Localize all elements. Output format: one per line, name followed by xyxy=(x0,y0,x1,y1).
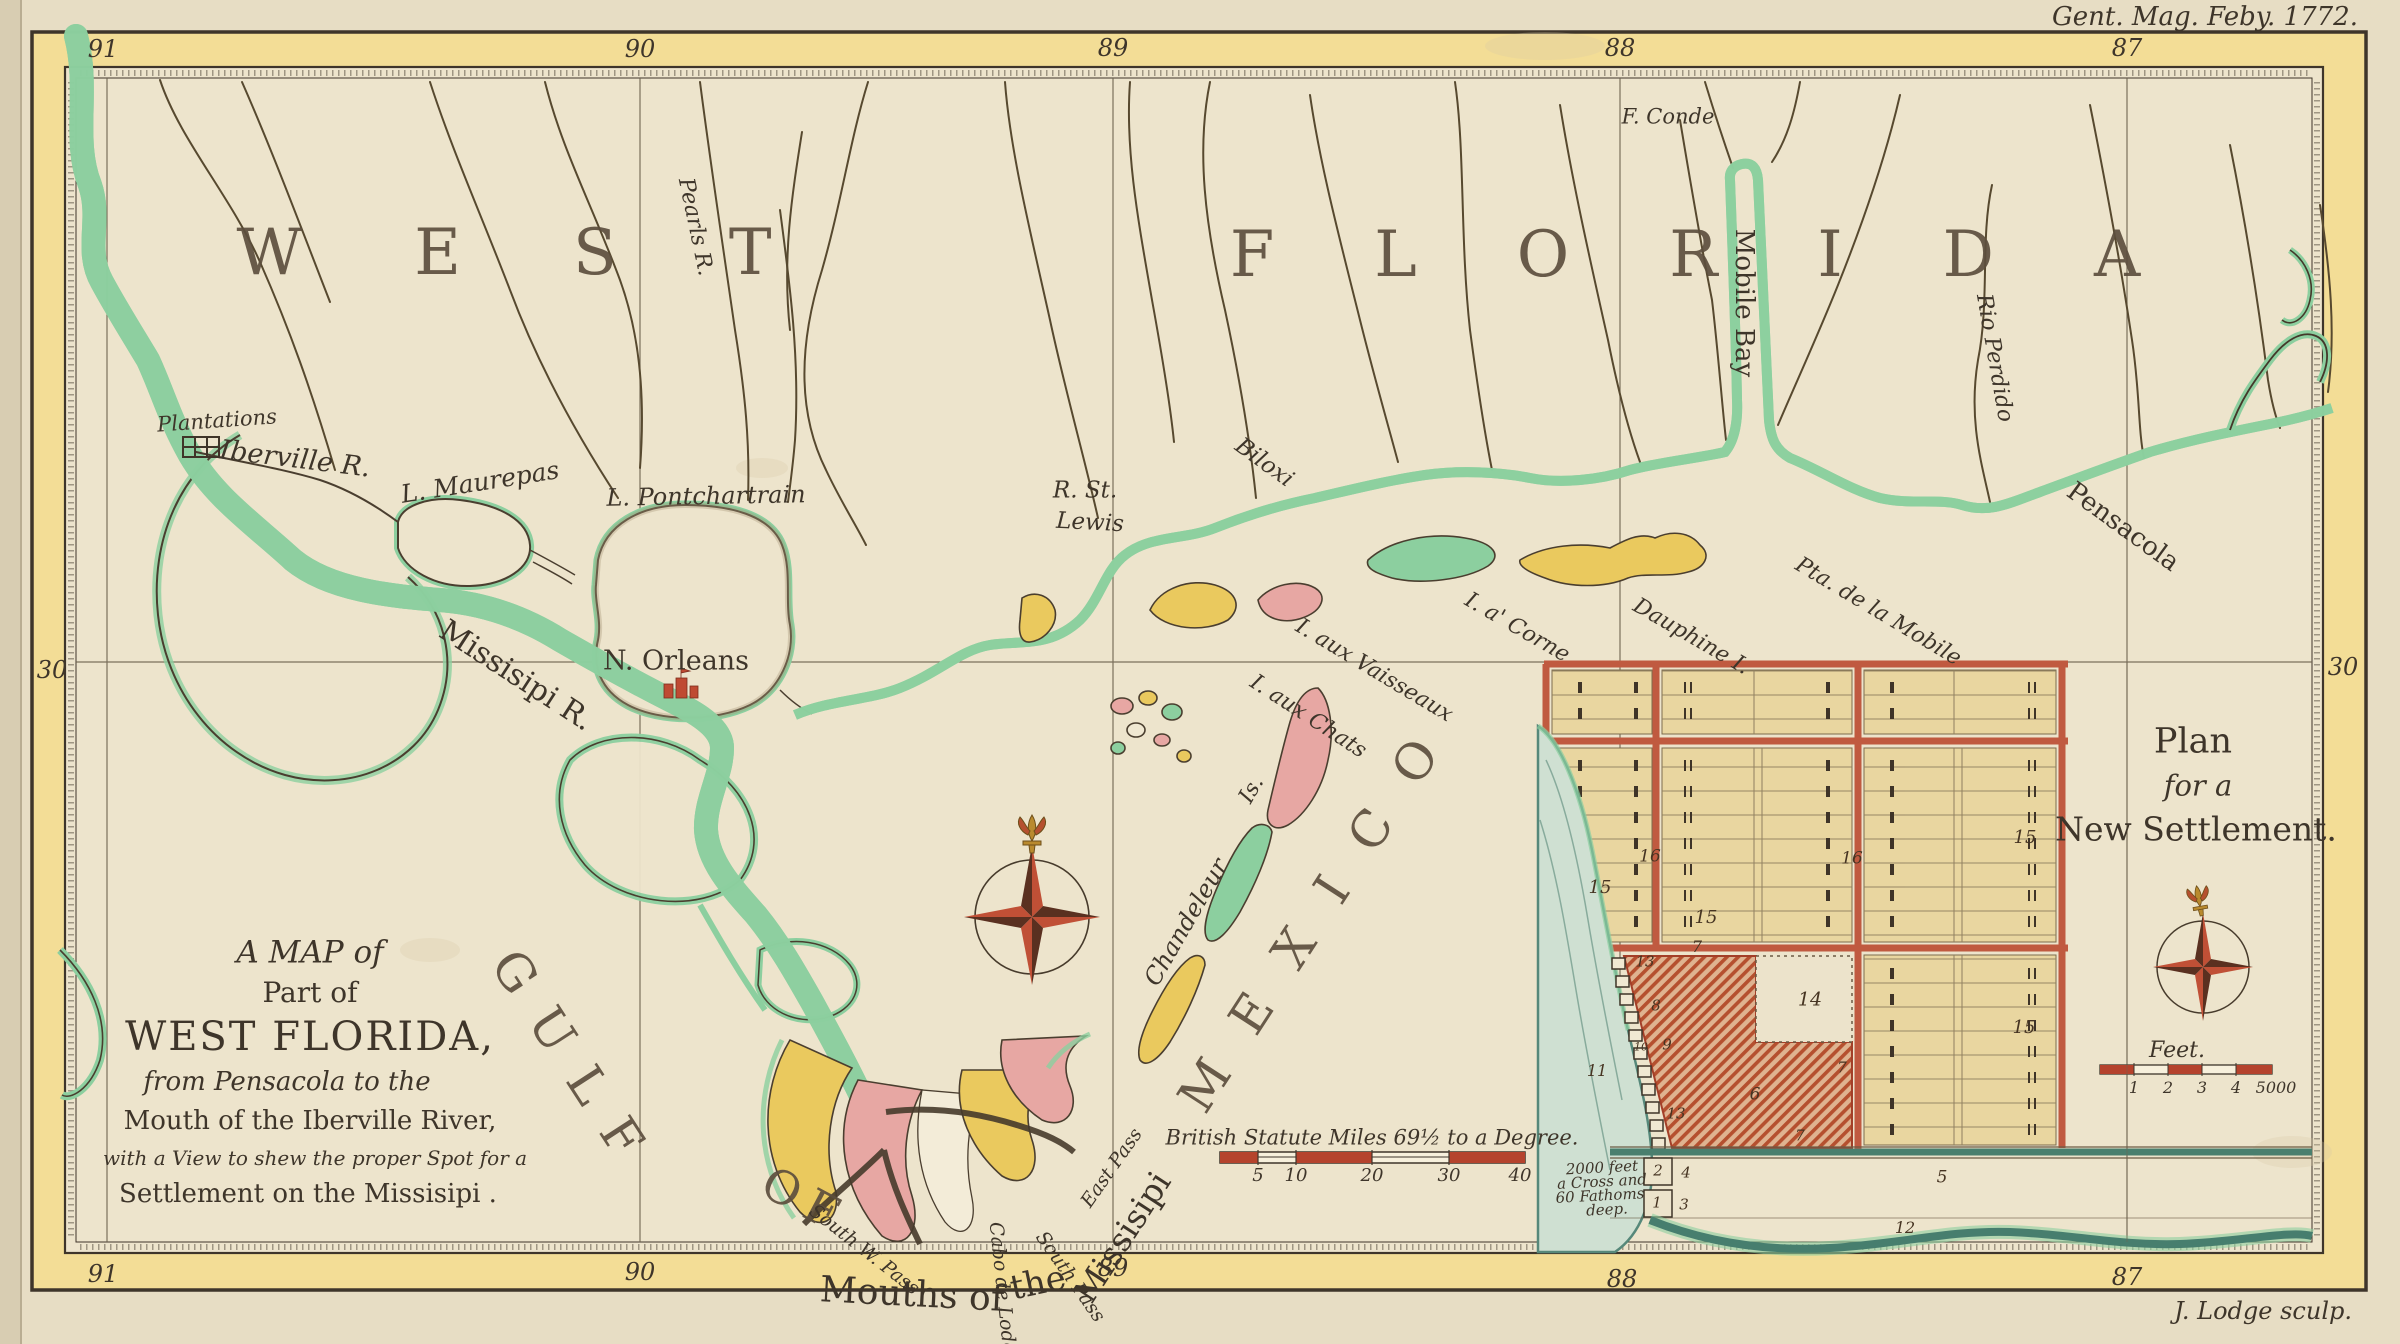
inset-plot-number: 1 xyxy=(1652,1196,1662,1211)
title-line-2: Part of xyxy=(262,979,357,1007)
degree-top-88: 88 xyxy=(1605,36,1636,60)
inset-plot-number: 16 xyxy=(1841,851,1863,868)
degree-bottom-87: 87 xyxy=(2112,1265,2143,1289)
scale-tick-5: 5 xyxy=(1252,1167,1263,1185)
inset-plot-number: 3 xyxy=(1679,1198,1689,1213)
scale-tick-30: 30 xyxy=(1438,1167,1461,1185)
inset-depth-note-4: deep. xyxy=(1586,1201,1628,1218)
scan-edge xyxy=(0,0,22,1344)
inset-plot-number: 9 xyxy=(1662,1038,1672,1053)
inset-feet-tick-1: 1 xyxy=(2129,1080,2139,1096)
scale-tick-40: 40 xyxy=(1509,1167,1532,1185)
title-line-1: A MAP of xyxy=(236,938,383,969)
inset-plot-number: 5 xyxy=(1937,1170,1948,1187)
inset-feet-tick-4: 4 xyxy=(2231,1080,2241,1096)
inset-plot-number: 12 xyxy=(1895,1220,1915,1236)
inset-plot-number: 13 xyxy=(1635,955,1654,970)
inset-title-line-2: for a xyxy=(2164,772,2233,801)
label-mobile-bay: Mobile Bay xyxy=(1731,229,1757,378)
title-line-3: WEST FLORIDA, xyxy=(125,1017,495,1057)
engraver-credit: J. Lodge sculp. xyxy=(2174,1299,2352,1323)
title-line-5: Mouth of the Iberville River, xyxy=(124,1108,497,1134)
inset-plot-number: 6 xyxy=(1750,1087,1761,1104)
label-new-orleans: N. Orleans xyxy=(603,648,749,675)
inset-plot-number: 7 xyxy=(1837,1061,1847,1076)
degree-bottom-90: 90 xyxy=(625,1260,656,1284)
scale-tick-20: 20 xyxy=(1361,1167,1384,1185)
map-sheet: Gent. Mag. Feby. 1772. J. Lodge sculp. 9… xyxy=(0,0,2400,1344)
inset-feet-tick-3: 3 xyxy=(2197,1080,2207,1096)
title-line-7: Settlement on the Missisipi . xyxy=(119,1181,497,1207)
inset-plot-number: 13 xyxy=(1666,1107,1685,1122)
label-river-st: R. St. xyxy=(1053,480,1117,503)
inset-plot-number: 7 xyxy=(1795,1129,1805,1144)
inset-plot-number: 14 xyxy=(1798,991,1822,1010)
latitude-left-30: 30 xyxy=(37,658,68,682)
scale-tick-10: 10 xyxy=(1285,1167,1308,1185)
inset-feet-tick-5000: 5000 xyxy=(2256,1080,2297,1096)
inset-plot-number: 15 xyxy=(1695,909,1718,927)
degree-top-90: 90 xyxy=(625,37,656,61)
degree-top-91: 91 xyxy=(88,37,119,61)
inset-plot-number: 15 xyxy=(2013,1019,2036,1037)
publication-credit: Gent. Mag. Feby. 1772. xyxy=(2052,4,2358,30)
inset-plot-number: 11 xyxy=(1587,1063,1607,1079)
scale-bar-label: British Statute Miles 69½ to a Degree. xyxy=(1166,1128,1579,1149)
degree-top-89: 89 xyxy=(1098,36,1129,60)
label-lake-pontchartrain: L. Pontchartrain xyxy=(606,482,806,509)
inset-feet-label: Feet. xyxy=(2149,1040,2205,1062)
inset-title-line-3: New Settlement. xyxy=(2055,813,2337,846)
inset-plot-number: 15 xyxy=(1589,879,1612,897)
label-river-st-lewis: Lewis xyxy=(1056,510,1125,537)
inset-feet-tick-2: 2 xyxy=(2163,1080,2173,1096)
inset-plot-number: 4 xyxy=(1681,1166,1691,1181)
inset-plot-number: 2 xyxy=(1653,1164,1663,1179)
degree-bottom-88: 88 xyxy=(1607,1267,1638,1291)
title-line-6: with a View to shew the proper Spot for … xyxy=(103,1148,527,1168)
scale-bar xyxy=(1220,1150,1525,1165)
latitude-right-30: 30 xyxy=(2328,655,2359,679)
inset-plot-number: 7 xyxy=(1692,939,1702,955)
inset-plot-number: 15 xyxy=(2014,829,2037,847)
inset-title-line-1: Plan xyxy=(2154,725,2232,760)
degree-top-87: 87 xyxy=(2112,36,2143,60)
inset-plot-number: 8 xyxy=(1651,999,1661,1014)
inset-plot-number: 10 xyxy=(1634,1042,1648,1053)
inset-plot-number: 16 xyxy=(1639,849,1661,866)
region-west: WEST xyxy=(236,221,883,285)
inset-scale-bar xyxy=(2100,1063,2272,1076)
degree-bottom-91: 91 xyxy=(88,1262,119,1286)
label-fort-conde: F. Conde xyxy=(1622,107,1715,128)
title-line-4: from Pensacola to the xyxy=(143,1069,430,1095)
